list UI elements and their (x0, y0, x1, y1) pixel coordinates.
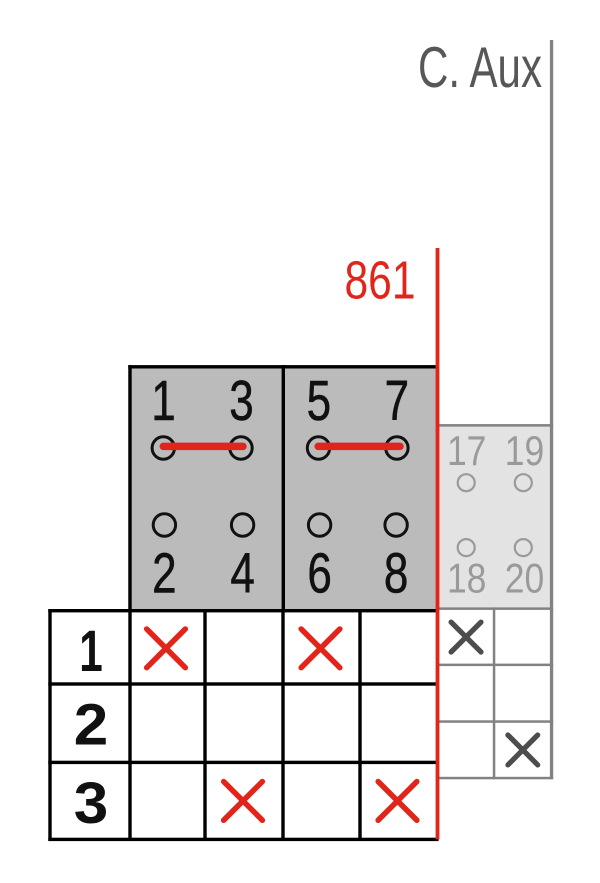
svg-text:5: 5 (307, 369, 332, 432)
svg-text:3: 3 (74, 771, 109, 836)
svg-text:861: 861 (345, 250, 416, 310)
svg-text:17: 17 (447, 427, 487, 474)
svg-text:7: 7 (385, 369, 410, 432)
svg-text:6: 6 (307, 541, 332, 604)
svg-text:19: 19 (505, 427, 545, 474)
svg-text:2: 2 (74, 692, 109, 757)
svg-text:20: 20 (505, 554, 545, 601)
svg-text:1: 1 (151, 369, 176, 432)
svg-text:8: 8 (384, 541, 409, 604)
svg-text:2: 2 (152, 541, 177, 604)
svg-text:18: 18 (447, 554, 487, 601)
svg-text:C. Aux: C. Aux (418, 36, 542, 100)
svg-text:3: 3 (229, 369, 254, 432)
svg-text:1: 1 (79, 619, 103, 684)
svg-text:4: 4 (230, 541, 255, 604)
